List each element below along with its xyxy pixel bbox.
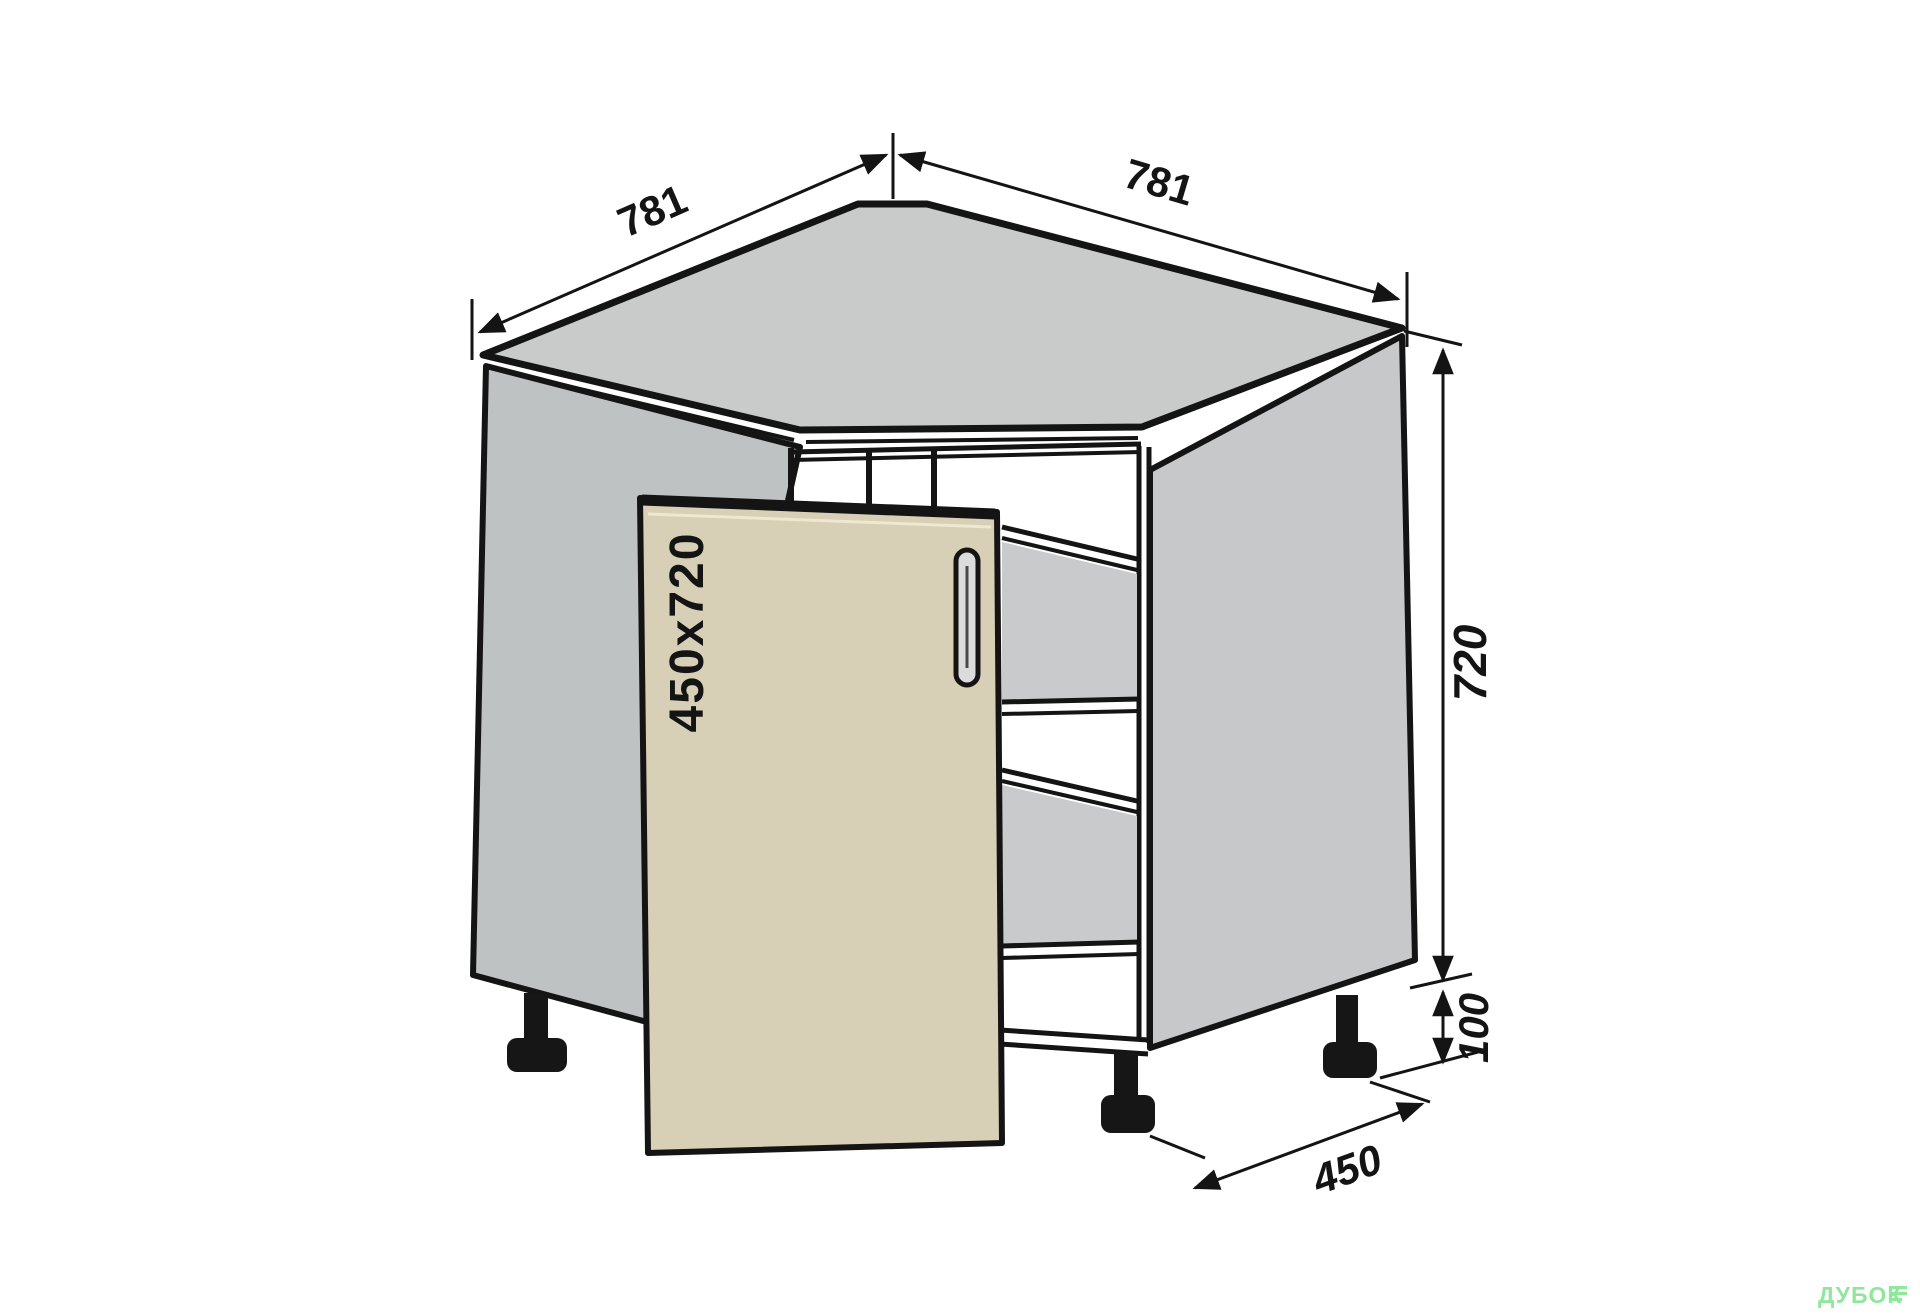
cabinet-interior	[1000, 527, 1148, 1054]
ext-line-height-top	[1404, 331, 1462, 345]
leg-stem-right	[1336, 995, 1358, 1045]
bottom-rail-line	[1000, 1030, 1148, 1040]
leg-stem-front	[1114, 1052, 1138, 1098]
door-handle	[956, 550, 978, 685]
top-rail-line	[792, 444, 1141, 452]
ext-line-height-bottom	[1410, 974, 1472, 988]
watermark-smalltext-lines	[1889, 1286, 1907, 1301]
dim-label-depth: 450	[1305, 1135, 1388, 1203]
dimension-depth: 450	[1150, 1082, 1430, 1204]
right-side-panel	[1150, 336, 1415, 1048]
countertop-surface	[483, 204, 1402, 430]
dim-label-top-right: 781	[1119, 150, 1200, 215]
right-side-panel-face	[1150, 336, 1415, 1048]
ext-line-depth-right	[1370, 1082, 1430, 1102]
watermark: ДУБОК	[1818, 1282, 1907, 1308]
countertop-edge-front	[806, 438, 1138, 442]
ext-line-depth-left	[1150, 1136, 1205, 1158]
leg-foot-right	[1323, 1042, 1377, 1078]
leg-stem-left	[524, 993, 548, 1041]
dim-line-depth	[1195, 1104, 1422, 1188]
dim-label-height: 720	[1444, 624, 1496, 701]
leg-foot-front	[1101, 1095, 1155, 1133]
dim-label-legs: 100	[1450, 993, 1497, 1063]
lower-shelf-front-edge-2	[1002, 954, 1139, 958]
technical-drawing-canvas: 450x720 781 781 720 100 450	[0, 0, 1920, 1314]
dim-label-top-left: 781	[611, 175, 694, 246]
dimension-height: 720	[1404, 331, 1496, 988]
upper-shelf-front-edge-2	[1002, 711, 1139, 714]
dimension-leg-height: 100	[1380, 992, 1497, 1078]
upper-shelf-front-edge	[1002, 699, 1139, 702]
corner-cabinet-drawing: 450x720 781 781 720 100 450	[0, 0, 1920, 1314]
door-size-label: 450x720	[661, 532, 714, 733]
cabinet-door: 450x720	[640, 498, 1002, 1153]
leg-foot-left	[507, 1038, 567, 1072]
